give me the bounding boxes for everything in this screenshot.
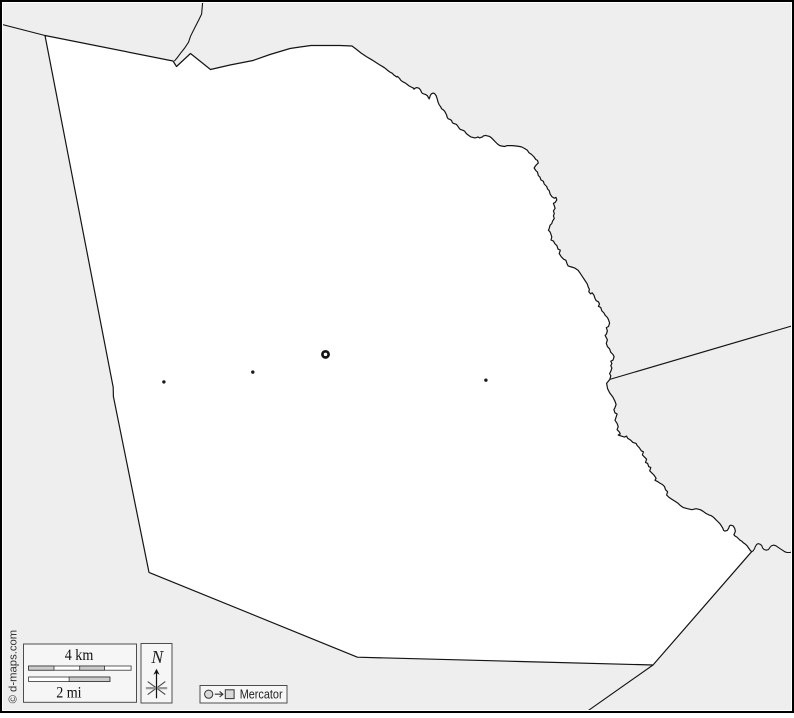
svg-text:2 mi: 2 mi xyxy=(56,684,82,701)
svg-text:N: N xyxy=(150,647,164,667)
svg-text:© d-maps.com: © d-maps.com xyxy=(8,630,20,704)
svg-text:Mercator: Mercator xyxy=(240,688,283,702)
svg-text:4 km: 4 km xyxy=(65,647,94,664)
